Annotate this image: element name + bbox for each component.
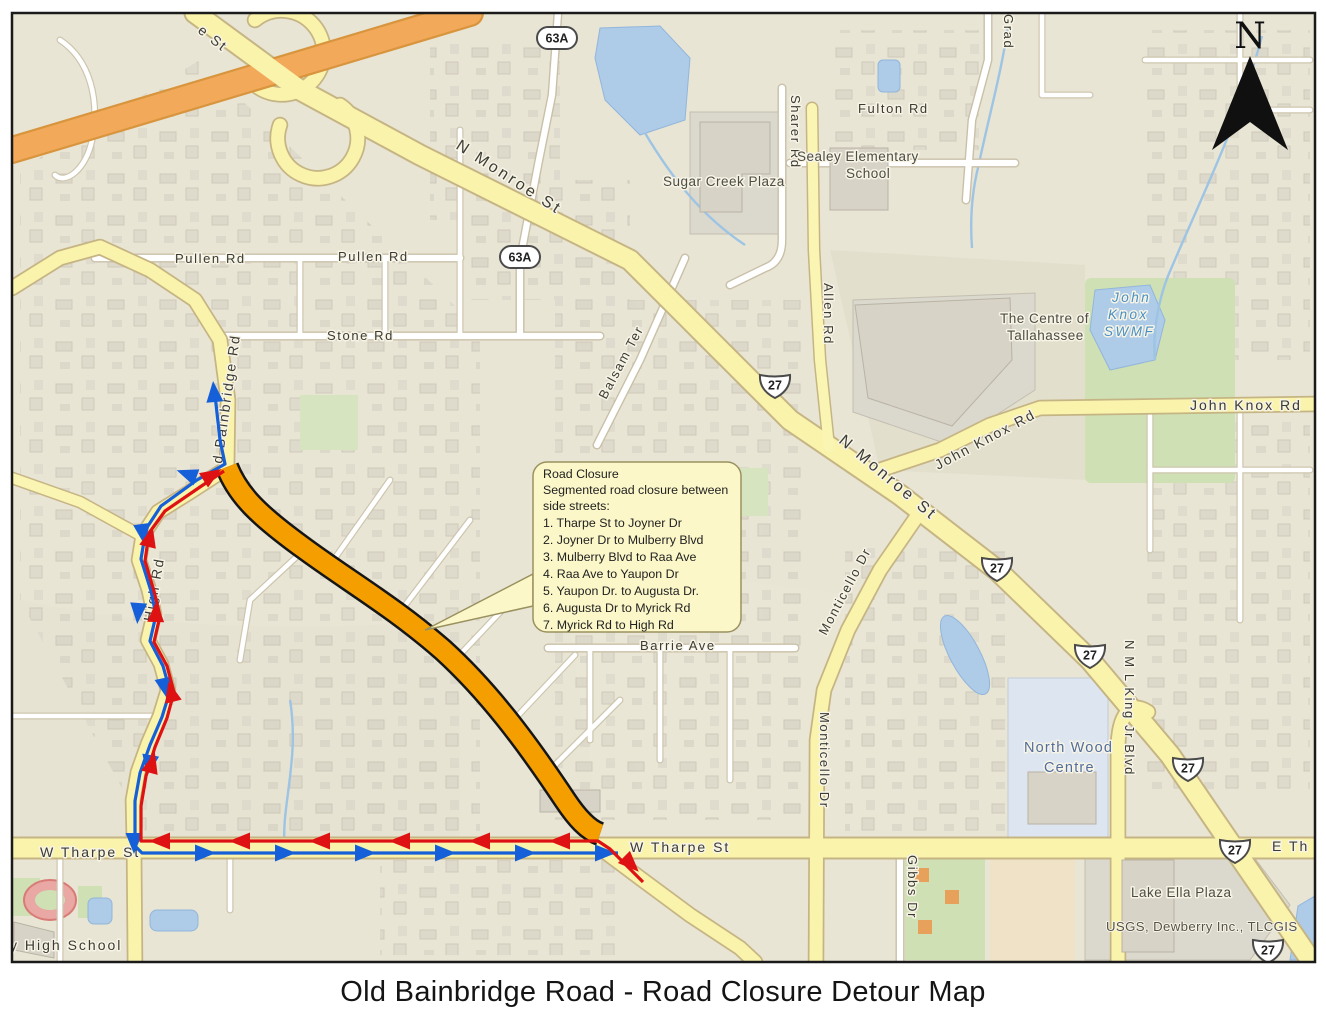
label-lake-ella-plaza: Lake Ella Plaza (1131, 885, 1232, 900)
map-canvas: N Monroe St N Monroe St e St d Bainbridg… (0, 0, 1326, 1026)
label-monticello-dr-2: Monticello Dr (817, 712, 832, 809)
fl-63a-shield: 63A (537, 27, 577, 49)
label-w-tharpe-st-2: W Tharpe St (630, 839, 730, 855)
callout-item: 1. Tharpe St to Joyner Dr (543, 516, 682, 530)
label-pullen-rd-2: Pullen Rd (338, 249, 409, 264)
label-swmf-3: SWMF (1104, 324, 1155, 339)
callout-item: 5. Yaupon Dr. to Augusta Dr. (543, 584, 699, 598)
callout-sub2: side streets: (543, 499, 610, 513)
svg-text:63A: 63A (546, 32, 569, 46)
callout-heading: Road Closure (543, 467, 619, 481)
svg-text:63A: 63A (509, 251, 532, 265)
label-stone-rd: Stone Rd (327, 328, 394, 343)
label-sugar-creek-plaza: Sugar Creek Plaza (663, 174, 785, 189)
label-north-wood-2: Centre (1044, 760, 1095, 776)
label-mlk-blvd: N M L King Jr Blvd (1122, 640, 1137, 776)
attribution-text: USGS, Dewberry Inc., TLCGIS (1106, 919, 1298, 934)
callout-item: 6. Augusta Dr to Myrick Rd (543, 601, 690, 615)
svg-text:27: 27 (1181, 762, 1195, 776)
label-grady-rd: Grad (1001, 14, 1016, 49)
callout-item: 4. Raa Ave to Yaupon Dr (543, 567, 679, 581)
label-gibbs-dr: Gibbs Dr (905, 855, 920, 919)
svg-text:27: 27 (1228, 844, 1242, 858)
label-allen-rd: Allen Rd (821, 283, 836, 345)
label-sealey-2: School (846, 166, 890, 181)
label-e-tharpe-st: E Th (1272, 838, 1309, 854)
label-barrie-ave: Barrie Ave (640, 638, 716, 653)
label-north-wood-1: North Wood (1024, 740, 1113, 756)
svg-text:27: 27 (1083, 649, 1097, 663)
callout-item: 2. Joyner Dr to Mulberry Blvd (543, 533, 704, 547)
label-centre-2: Tallahassee (1007, 328, 1084, 343)
label-swmf-1: John (1111, 290, 1151, 305)
svg-text:27: 27 (990, 562, 1004, 576)
svg-text:27: 27 (768, 379, 782, 393)
map-title: Old Bainbridge Road - Road Closure Detou… (0, 976, 1326, 1009)
label-centre-1: The Centre of (1000, 311, 1089, 326)
label-john-knox-rd-2: John Knox Rd (1190, 397, 1302, 413)
label-swmf-2: Knox (1108, 307, 1149, 322)
label-pullen-rd: Pullen Rd (175, 251, 246, 266)
label-high-school: y High School (10, 937, 122, 953)
svg-text:27: 27 (1261, 944, 1275, 958)
fl-63a-shield-2: 63A (500, 246, 540, 268)
callout-item: 3. Mulberry Blvd to Raa Ave (543, 550, 696, 564)
callout-sub1: Segmented road closure between (543, 483, 728, 497)
label-w-tharpe-st: W Tharpe St (40, 844, 140, 860)
callout-item: 7. Myrick Rd to High Rd (543, 618, 674, 632)
label-fulton-rd: Fulton Rd (858, 101, 929, 116)
north-label: N (1234, 16, 1266, 57)
label-sealey-1: Sealey Elementary (797, 149, 919, 164)
